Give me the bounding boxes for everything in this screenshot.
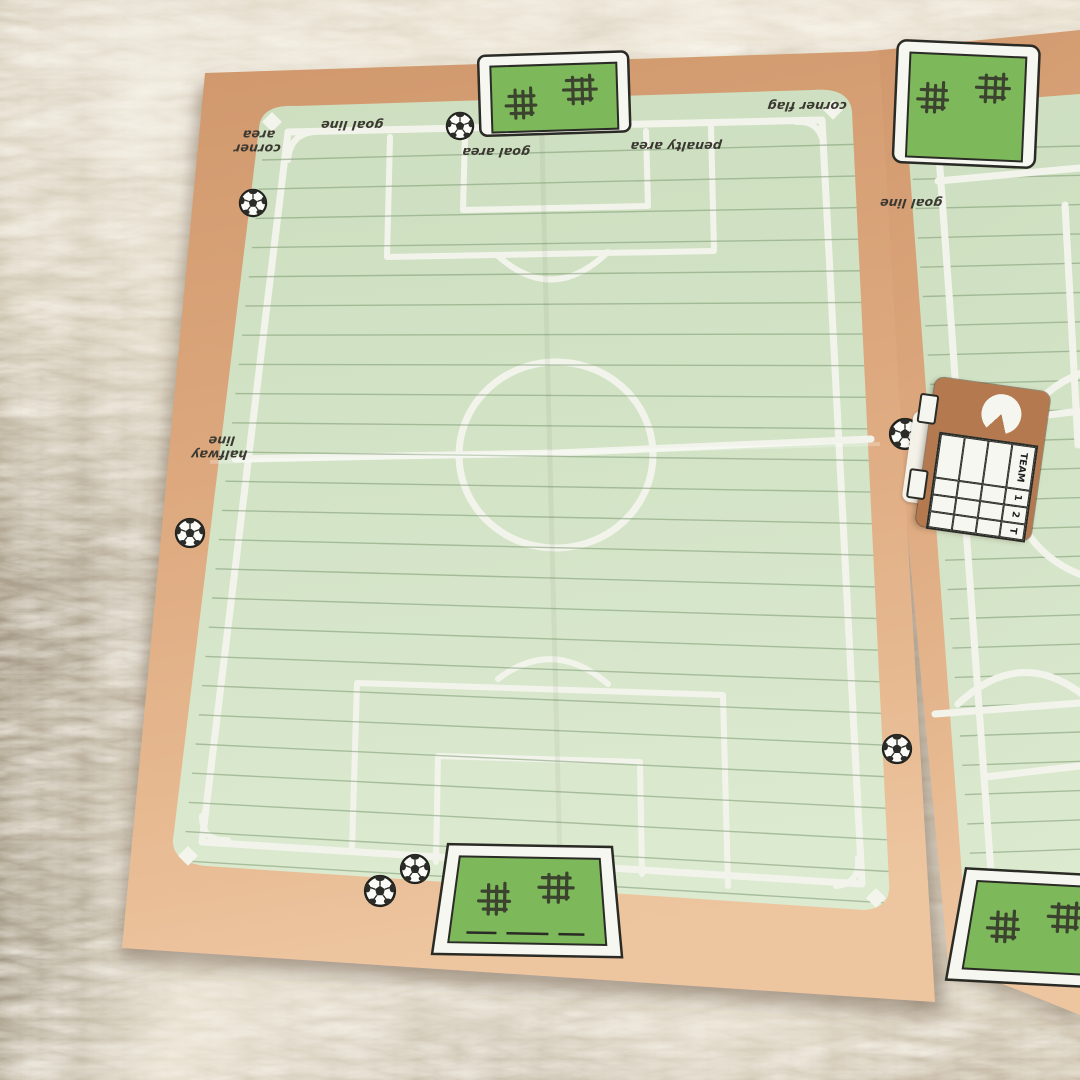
goal [432, 844, 624, 957]
soccer-ball-icon [365, 875, 395, 905]
scoreboard-empty-cell [952, 515, 978, 534]
label-penalty-area: penalty area [627, 139, 724, 153]
scoreboard-cutout: TEAM 1 2 T [909, 370, 1056, 548]
goal [946, 868, 1080, 989]
scoreboard-board: TEAM 1 2 T [915, 377, 1051, 542]
photo-scene: corner area goal line goal area penalty … [0, 0, 1080, 1080]
label-goal-line: goal line [311, 118, 392, 132]
label-goal-line-sheet2: goal line [877, 196, 944, 210]
soccer-ball-icon [883, 734, 912, 763]
goal [478, 51, 630, 136]
scoreboard-header-total: T [999, 521, 1025, 540]
label-corner-area: corner area [233, 128, 284, 156]
paper-sheets [0, 0, 1080, 1080]
soccer-ball-icon [176, 518, 205, 547]
scoreboard-foot [916, 393, 939, 425]
label-goal-area: goal area [455, 145, 536, 159]
scoreboard-empty-cell [928, 511, 954, 530]
goal [893, 40, 1040, 168]
soccer-ball-icon [401, 854, 430, 883]
scoreboard-table: TEAM 1 2 T [926, 432, 1039, 543]
scoreboard-empty-cell [976, 518, 1002, 537]
clock-icon [979, 392, 1024, 437]
soccer-ball-icon [240, 189, 267, 216]
label-halfway-line: halfway line [193, 434, 250, 462]
soccer-ball-icon [447, 112, 474, 139]
scoreboard-foot [906, 468, 929, 500]
label-corner-flag: corner flag [765, 99, 848, 113]
